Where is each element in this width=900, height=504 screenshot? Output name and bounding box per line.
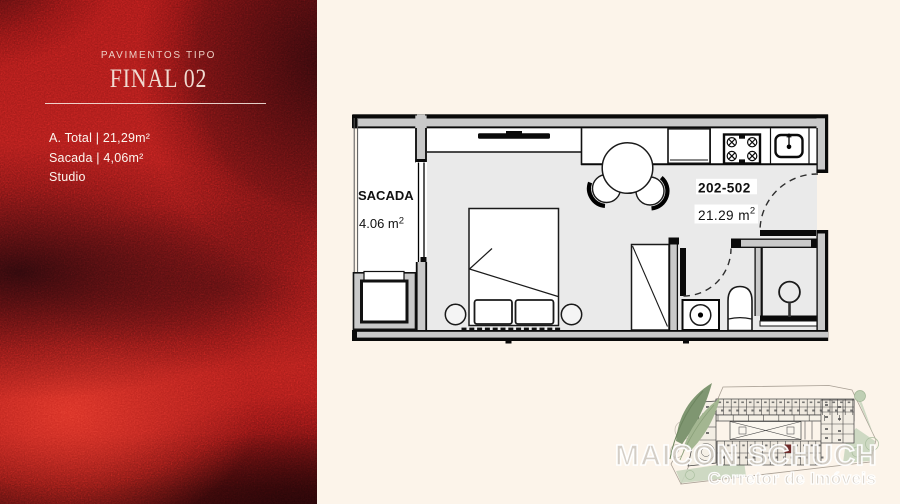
svg-text:202-502: 202-502: [698, 181, 751, 196]
svg-text:21.29 m2: 21.29 m2: [698, 205, 756, 223]
svg-text:4.06 m2: 4.06 m2: [359, 216, 404, 232]
svg-text:SACADA: SACADA: [358, 188, 414, 203]
